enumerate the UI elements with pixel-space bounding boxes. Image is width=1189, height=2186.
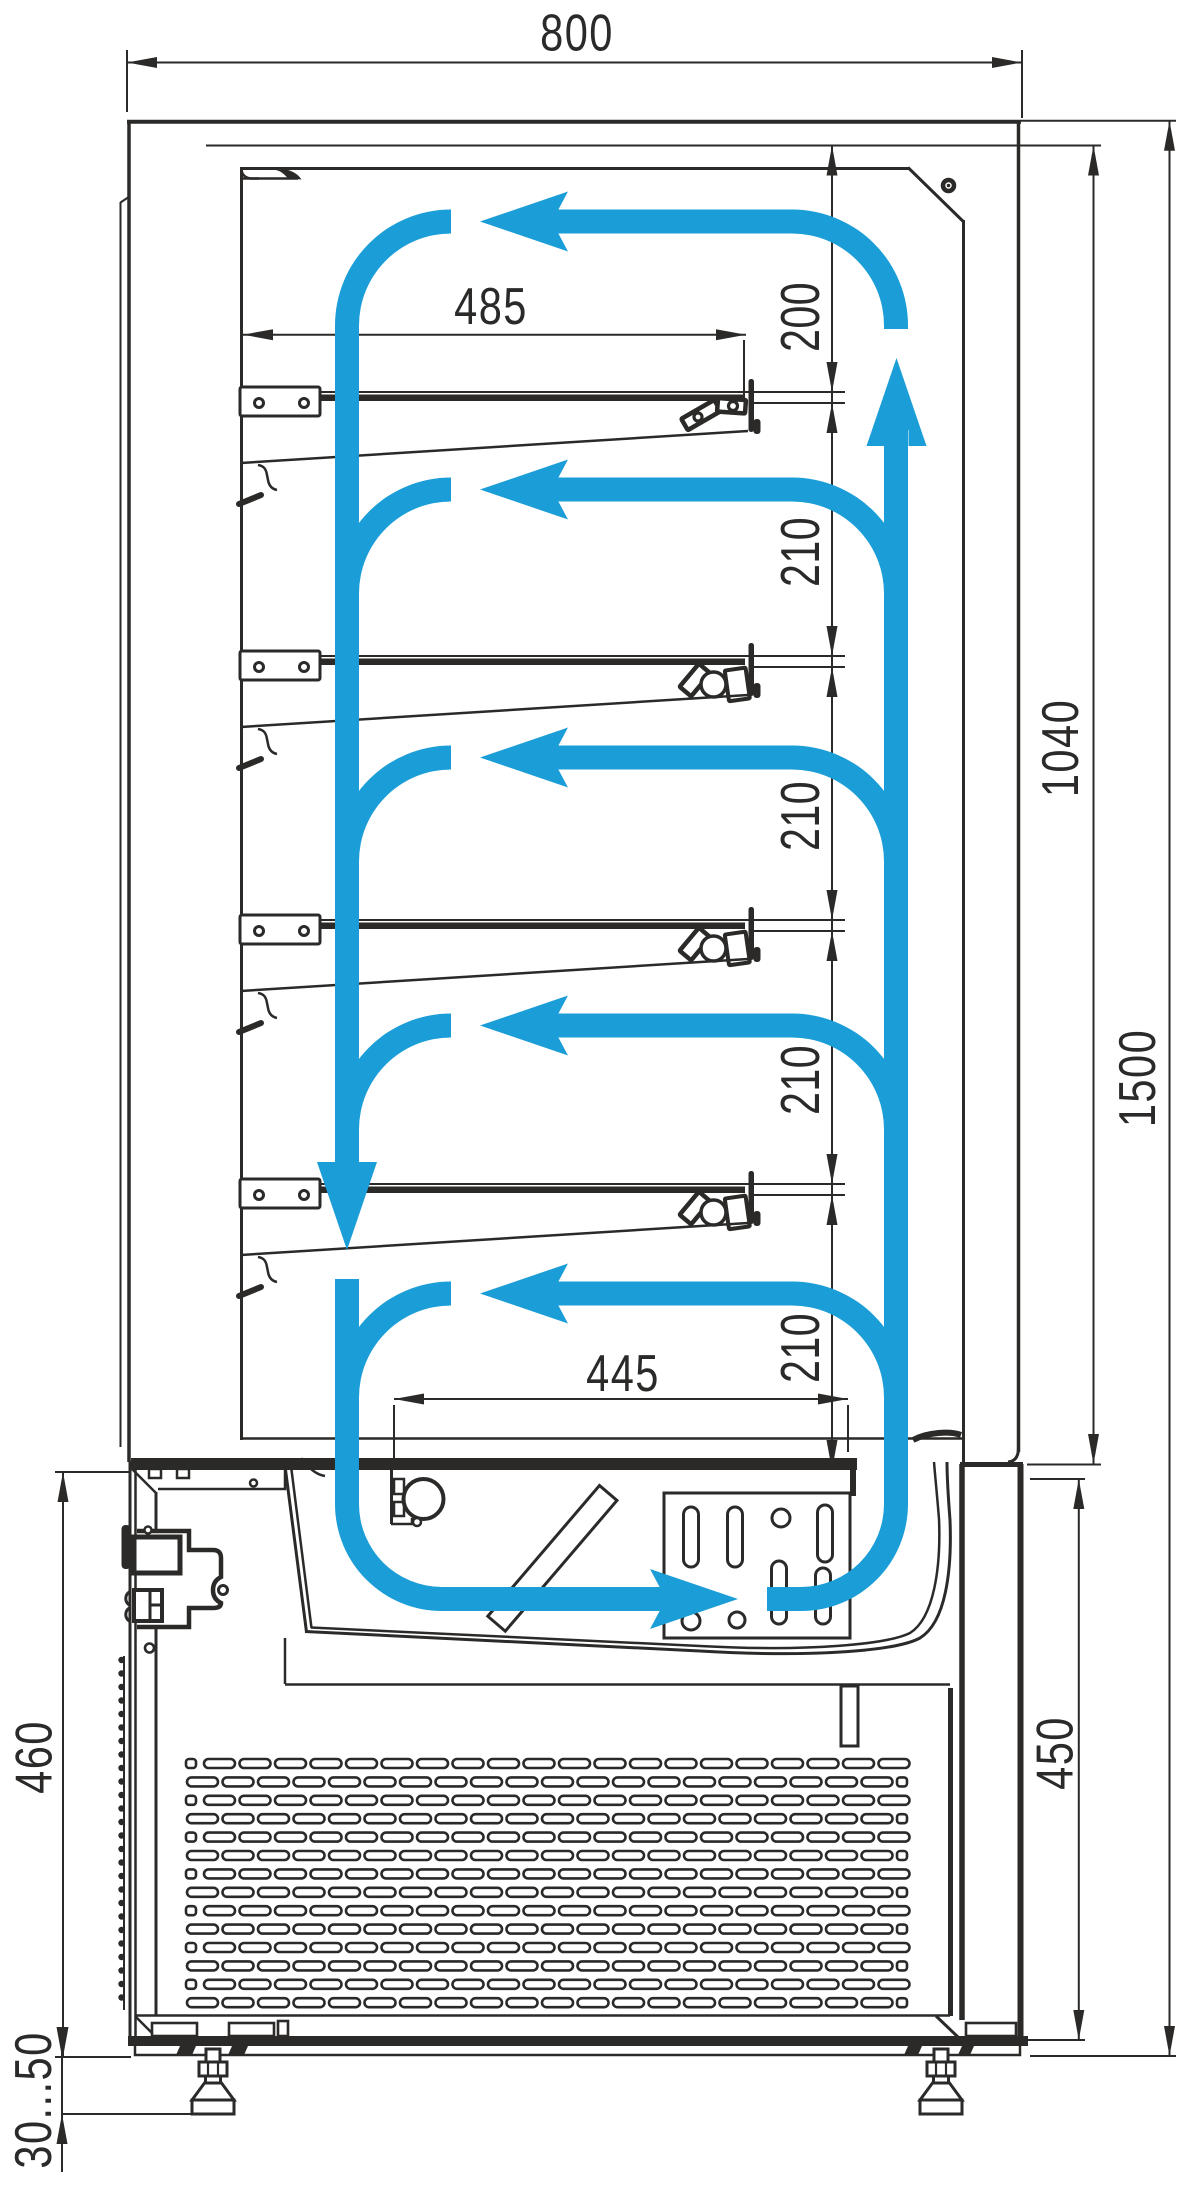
svg-text:460: 460 — [4, 1720, 63, 1794]
svg-text:485: 485 — [454, 277, 528, 336]
svg-text:445: 445 — [586, 1344, 660, 1403]
svg-text:1500: 1500 — [1108, 1029, 1167, 1127]
svg-text:210: 210 — [770, 1313, 831, 1383]
svg-text:1040: 1040 — [1031, 699, 1090, 797]
svg-text:210: 210 — [770, 1045, 831, 1115]
svg-text:210: 210 — [770, 781, 831, 851]
svg-text:30...50: 30...50 — [4, 2031, 63, 2168]
svg-text:800: 800 — [540, 3, 614, 62]
svg-text:200: 200 — [770, 282, 831, 352]
svg-text:450: 450 — [1025, 1716, 1084, 1790]
svg-text:210: 210 — [770, 517, 831, 587]
